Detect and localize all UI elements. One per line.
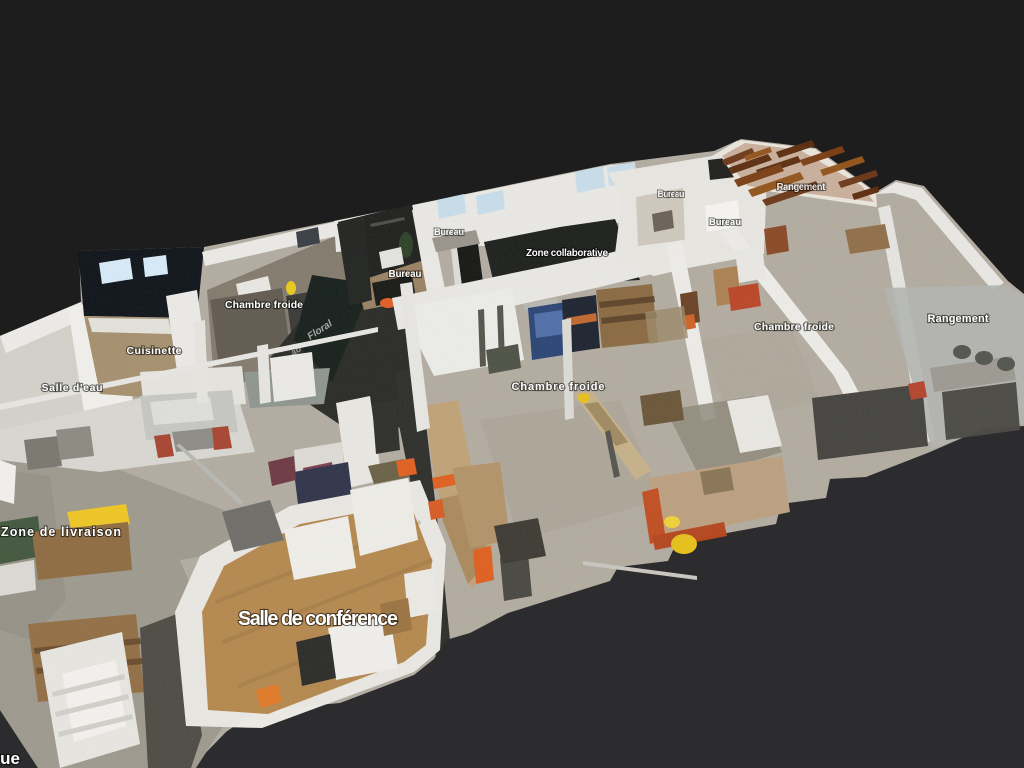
svg-text:Rangement: Rangement	[928, 313, 989, 325]
svg-text:Cuisinette: Cuisinette	[127, 345, 182, 357]
svg-text:Chambre froide: Chambre froide	[754, 321, 834, 333]
svg-text:Zone collaborative: Zone collaborative	[526, 248, 608, 259]
svg-text:ue: ue	[0, 749, 20, 768]
svg-text:Salle d'eau: Salle d'eau	[42, 382, 103, 394]
svg-text:Chambre froide: Chambre froide	[225, 299, 303, 311]
svg-text:Zone de livraison: Zone de livraison	[1, 525, 121, 539]
svg-text:Bureau: Bureau	[709, 217, 741, 228]
svg-text:Bureau: Bureau	[658, 189, 685, 199]
svg-text:Rangement: Rangement	[777, 182, 827, 193]
svg-text:Chambre froide: Chambre froide	[512, 381, 605, 393]
svg-text:Salle de conférence: Salle de conférence	[238, 608, 398, 630]
svg-text:Bureau: Bureau	[434, 227, 464, 238]
svg-text:Bureau: Bureau	[389, 269, 422, 280]
